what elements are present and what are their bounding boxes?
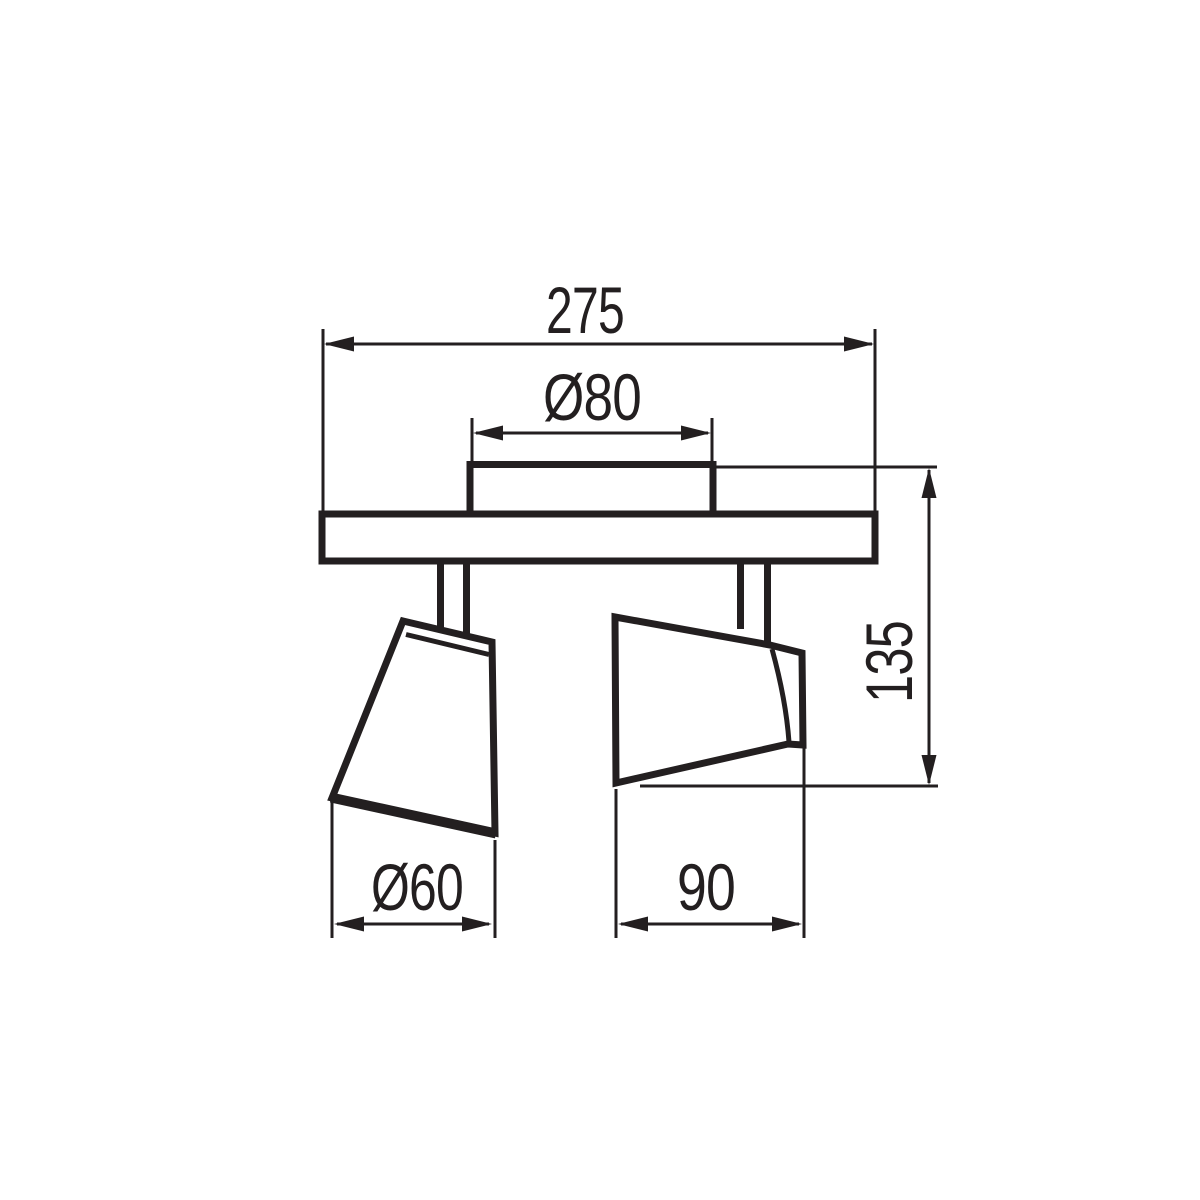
- fixture-outline: [322, 465, 875, 834]
- right-arm: [741, 559, 768, 644]
- spotlight-dimension-drawing: 275 Ø80 135 Ø60 90: [0, 0, 1200, 1200]
- right-shade-body: [615, 617, 803, 783]
- arrowhead-left-icon: [324, 337, 354, 352]
- arrowhead-right-icon: [772, 917, 802, 932]
- mounting-canopy: [470, 465, 713, 516]
- left-lamp-head: [331, 621, 496, 834]
- arrowhead-right-icon: [844, 337, 874, 352]
- canopy-diameter-label: Ø80: [543, 360, 641, 434]
- arrowhead-right-icon: [681, 426, 711, 441]
- technical-drawing-canvas: 275 Ø80 135 Ø60 90: [0, 0, 1200, 1200]
- left-shade-diameter-label: Ø60: [371, 850, 463, 924]
- arrowhead-left-icon: [473, 426, 503, 441]
- arrowhead-left-icon: [334, 917, 364, 932]
- ceiling-plate: [322, 514, 875, 561]
- arrowhead-right-icon: [462, 917, 492, 932]
- overall-width-label: 275: [546, 273, 624, 347]
- fixture-height-label: 135: [852, 621, 926, 703]
- arrowhead-down-icon: [922, 755, 937, 785]
- right-lamp-head: [615, 617, 803, 783]
- arrowhead-up-icon: [922, 468, 937, 498]
- right-shade-width-label: 90: [677, 850, 735, 924]
- dimension-canopy-diameter: Ø80: [472, 360, 712, 464]
- arrowhead-left-icon: [618, 917, 648, 932]
